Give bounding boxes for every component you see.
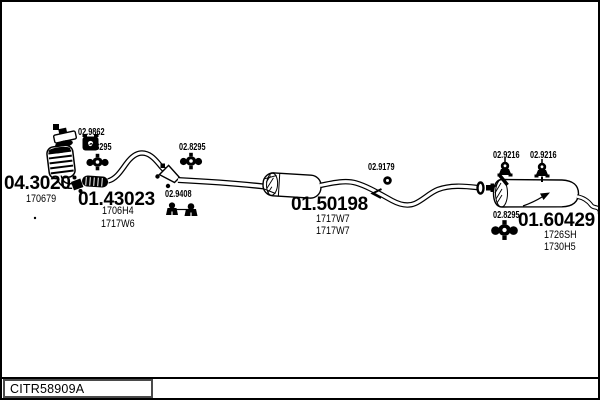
fitting-number-clamp-rear: 02.8295 bbox=[493, 210, 520, 221]
front-pipe-part-number: 04.3020 bbox=[4, 174, 71, 193]
diagram-code-box: CITR58909A bbox=[3, 379, 153, 398]
fitting-number-gasket: 02.9862 bbox=[78, 127, 105, 138]
middle-silencer-ref-2: 1717W7 bbox=[316, 226, 350, 237]
ring-gasket-icon bbox=[383, 176, 392, 185]
clamp-icon bbox=[491, 220, 518, 240]
center-pipe-ref-1: 1706H4 bbox=[102, 206, 134, 217]
clamp-icon bbox=[86, 154, 108, 171]
mount-point-marker bbox=[53, 124, 59, 130]
exhaust-parts-diagram: 04.3020 170679 01.43023 1706H4 1717W6 01… bbox=[0, 0, 600, 400]
fitting-number-clamp-center: 02.8295 bbox=[179, 142, 206, 153]
flex-pipe-drawing bbox=[82, 175, 109, 188]
speck bbox=[34, 217, 36, 219]
rear-inlet-flange bbox=[478, 183, 495, 194]
clamp-icon bbox=[180, 153, 202, 170]
middle-silencer-ref-1: 1717W7 bbox=[316, 214, 350, 225]
front-pipe-ref: 170679 bbox=[26, 194, 56, 205]
rubber-hanger-icon bbox=[535, 159, 550, 178]
middle-silencer-part-number: 01.50198 bbox=[291, 195, 368, 214]
rear-silencer-ref-2: 1730H5 bbox=[544, 242, 576, 253]
fitting-number-clamp-front: 02.8295 bbox=[85, 142, 112, 153]
rear-silencer-part-number: 01.60429 bbox=[518, 211, 595, 230]
center-pipe-ref-2: 1717W6 bbox=[101, 219, 135, 230]
rear-silencer-ref-1: 1726SH bbox=[544, 230, 577, 241]
fitting-number-ring: 02.9179 bbox=[368, 162, 395, 173]
fitting-number-hanger-1: 02.9216 bbox=[493, 150, 520, 161]
fitting-number-mounts: 02.9408 bbox=[165, 189, 192, 200]
rubber-mount-icon bbox=[166, 202, 198, 216]
front-pipe-bend bbox=[108, 153, 169, 181]
diagram-code: CITR58909A bbox=[10, 382, 84, 396]
fitting-number-hanger-2: 02.9216 bbox=[530, 150, 557, 161]
